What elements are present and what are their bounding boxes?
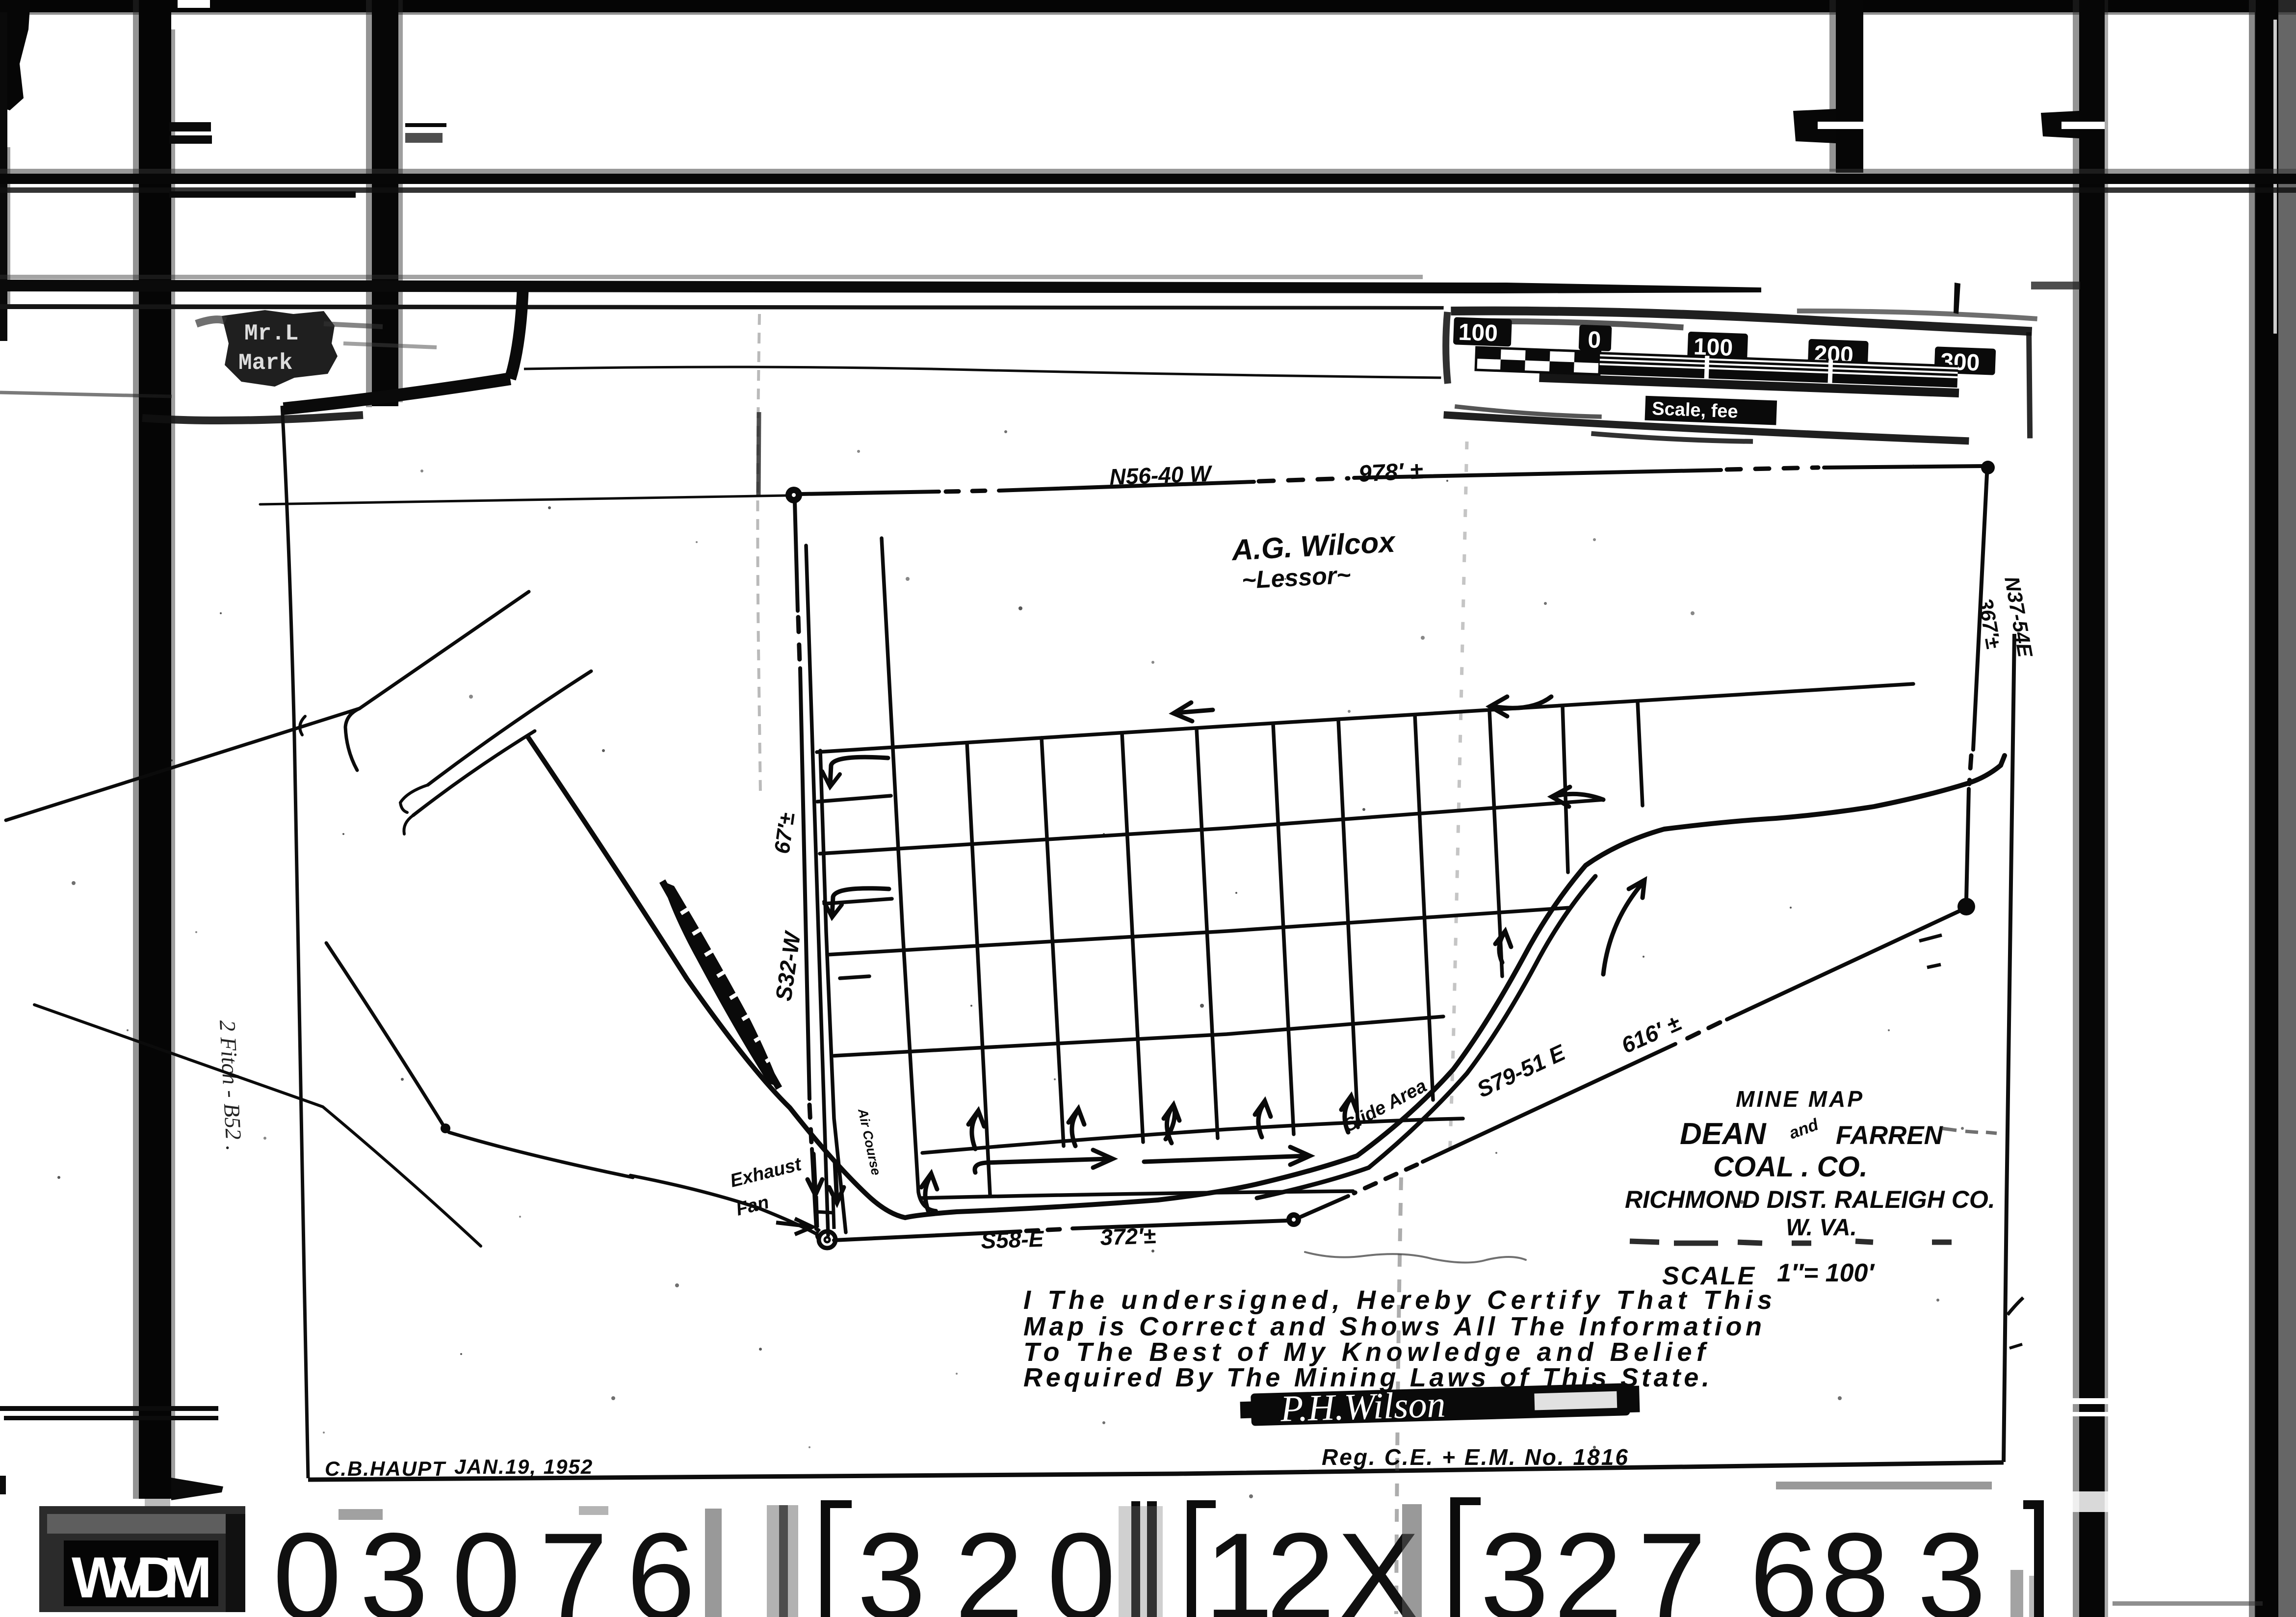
svg-text:N56-40 W: N56-40 W xyxy=(1109,461,1213,490)
svg-text:3: 3 xyxy=(360,1508,428,1617)
svg-text:~Lessor~: ~Lessor~ xyxy=(1241,561,1352,594)
svg-text:6: 6 xyxy=(1749,1508,1818,1617)
svg-text:2: 2 xyxy=(1554,1508,1622,1617)
svg-text:DEAN: DEAN xyxy=(1680,1117,1767,1151)
svg-text:2: 2 xyxy=(1266,1508,1335,1617)
svg-text:WVDM: WVDM xyxy=(72,1545,212,1610)
svg-text:P.H.Wilson: P.H.Wilson xyxy=(1279,1384,1446,1430)
svg-text:0: 0 xyxy=(1587,327,1601,353)
svg-text:100: 100 xyxy=(1458,319,1498,347)
svg-text:3: 3 xyxy=(857,1508,926,1617)
svg-text:0: 0 xyxy=(1047,1508,1116,1617)
svg-text:1″= 100′: 1″= 100′ xyxy=(1777,1259,1875,1287)
svg-text:3: 3 xyxy=(1480,1508,1549,1617)
svg-text:2: 2 xyxy=(955,1508,1023,1617)
svg-text:8: 8 xyxy=(1821,1508,1889,1617)
svg-text:RICHMOND DIST. RALEIGH CO.: RICHMOND DIST. RALEIGH CO. xyxy=(1625,1186,1995,1213)
svg-text:MINE MAP: MINE MAP xyxy=(1736,1086,1864,1112)
svg-text:Scale, fee: Scale, fee xyxy=(1652,398,1739,422)
svg-text:372′±: 372′± xyxy=(1100,1223,1157,1250)
svg-text:1: 1 xyxy=(1204,1508,1273,1617)
svg-text:3: 3 xyxy=(1917,1508,1986,1617)
svg-text:C.B.HAUPT: C.B.HAUPT xyxy=(325,1457,446,1480)
svg-text:Map is Correct and Shows All T: Map is Correct and Shows All The Informa… xyxy=(1023,1312,1762,1341)
svg-text:7: 7 xyxy=(1638,1508,1706,1617)
svg-text:S58-E: S58-E xyxy=(981,1226,1045,1253)
svg-text:Mr.L: Mr.L xyxy=(244,321,298,346)
svg-text:Mark: Mark xyxy=(238,350,292,376)
svg-text:978′ ±: 978′ ± xyxy=(1358,458,1424,487)
svg-text:W. VA.: W. VA. xyxy=(1786,1215,1857,1241)
svg-text:FARREN: FARREN xyxy=(1836,1121,1944,1150)
svg-text:COAL . CO.: COAL . CO. xyxy=(1713,1151,1868,1183)
svg-text:JAN.19, 1952: JAN.19, 1952 xyxy=(454,1455,593,1478)
svg-text:0: 0 xyxy=(452,1508,521,1617)
svg-text:0: 0 xyxy=(273,1508,341,1617)
svg-text:7: 7 xyxy=(539,1508,608,1617)
svg-text:To The Best of My Knowledge an: To The Best of My Knowledge and Belief xyxy=(1023,1337,1708,1367)
svg-text:6: 6 xyxy=(626,1508,695,1617)
